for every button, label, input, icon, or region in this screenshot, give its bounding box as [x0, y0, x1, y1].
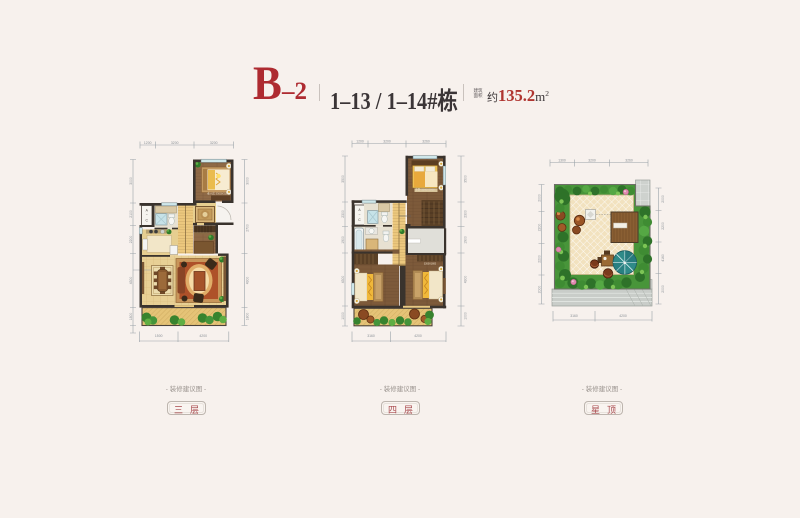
svg-text:1000: 1000 [341, 312, 345, 320]
svg-text:4300: 4300 [464, 276, 468, 284]
svg-text:3160: 3160 [367, 334, 375, 338]
svg-text:3200: 3200 [171, 141, 179, 145]
svg-text:4160: 4160 [661, 254, 665, 262]
svg-text:1500: 1500 [155, 334, 163, 338]
svg-text:3200: 3200 [383, 139, 391, 143]
svg-text:2200: 2200 [661, 222, 665, 230]
svg-text:1200: 1200 [356, 139, 364, 143]
svg-text:3500: 3500 [341, 175, 345, 183]
svg-text:3200: 3200 [210, 141, 218, 145]
svg-text:4300: 4300 [129, 277, 133, 285]
svg-text:2300: 2300 [464, 210, 468, 218]
svg-text:3000: 3000 [129, 177, 133, 185]
svg-text:4200: 4200 [199, 334, 207, 338]
svg-text:3500: 3500 [464, 175, 468, 183]
svg-text:~: ~ [146, 213, 148, 217]
svg-text:2700: 2700 [245, 224, 249, 232]
svg-text:1800: 1800 [129, 313, 133, 321]
svg-text:~: ~ [359, 213, 361, 217]
svg-text:2200: 2200 [129, 236, 133, 244]
svg-text:4300: 4300 [245, 277, 249, 285]
svg-text:1900: 1900 [464, 236, 468, 244]
svg-text:3160: 3160 [570, 314, 578, 318]
svg-text:3000: 3000 [245, 177, 249, 185]
svg-text:2200: 2200 [537, 255, 541, 263]
svg-text:3200: 3200 [588, 158, 596, 162]
svg-text:1000: 1000 [464, 312, 468, 320]
svg-text:3260: 3260 [625, 158, 633, 162]
svg-text:1300: 1300 [558, 158, 566, 162]
svg-text:2000: 2000 [537, 286, 541, 294]
svg-text:3260: 3260 [422, 139, 430, 143]
svg-text:3260X1800: 3260X1800 [424, 262, 437, 265]
svg-text:1800: 1800 [245, 313, 249, 321]
svg-text:4200: 4200 [414, 334, 422, 338]
svg-text:2000: 2000 [537, 194, 541, 202]
svg-text:4200: 4200 [619, 314, 627, 318]
svg-text:主卧 3260X3500: 主卧 3260X3500 [415, 188, 435, 192]
svg-text:2000: 2000 [661, 285, 665, 293]
svg-text:老人房 3300X3100: 老人房 3300X3100 [207, 192, 229, 196]
svg-text:1200: 1200 [144, 141, 152, 145]
svg-text:2100: 2100 [129, 210, 133, 218]
svg-text:4300: 4300 [341, 276, 345, 284]
svg-text:1900: 1900 [341, 236, 345, 244]
svg-text:2300: 2300 [341, 210, 345, 218]
svg-text:2200: 2200 [537, 224, 541, 232]
svg-text:2000: 2000 [661, 195, 665, 203]
